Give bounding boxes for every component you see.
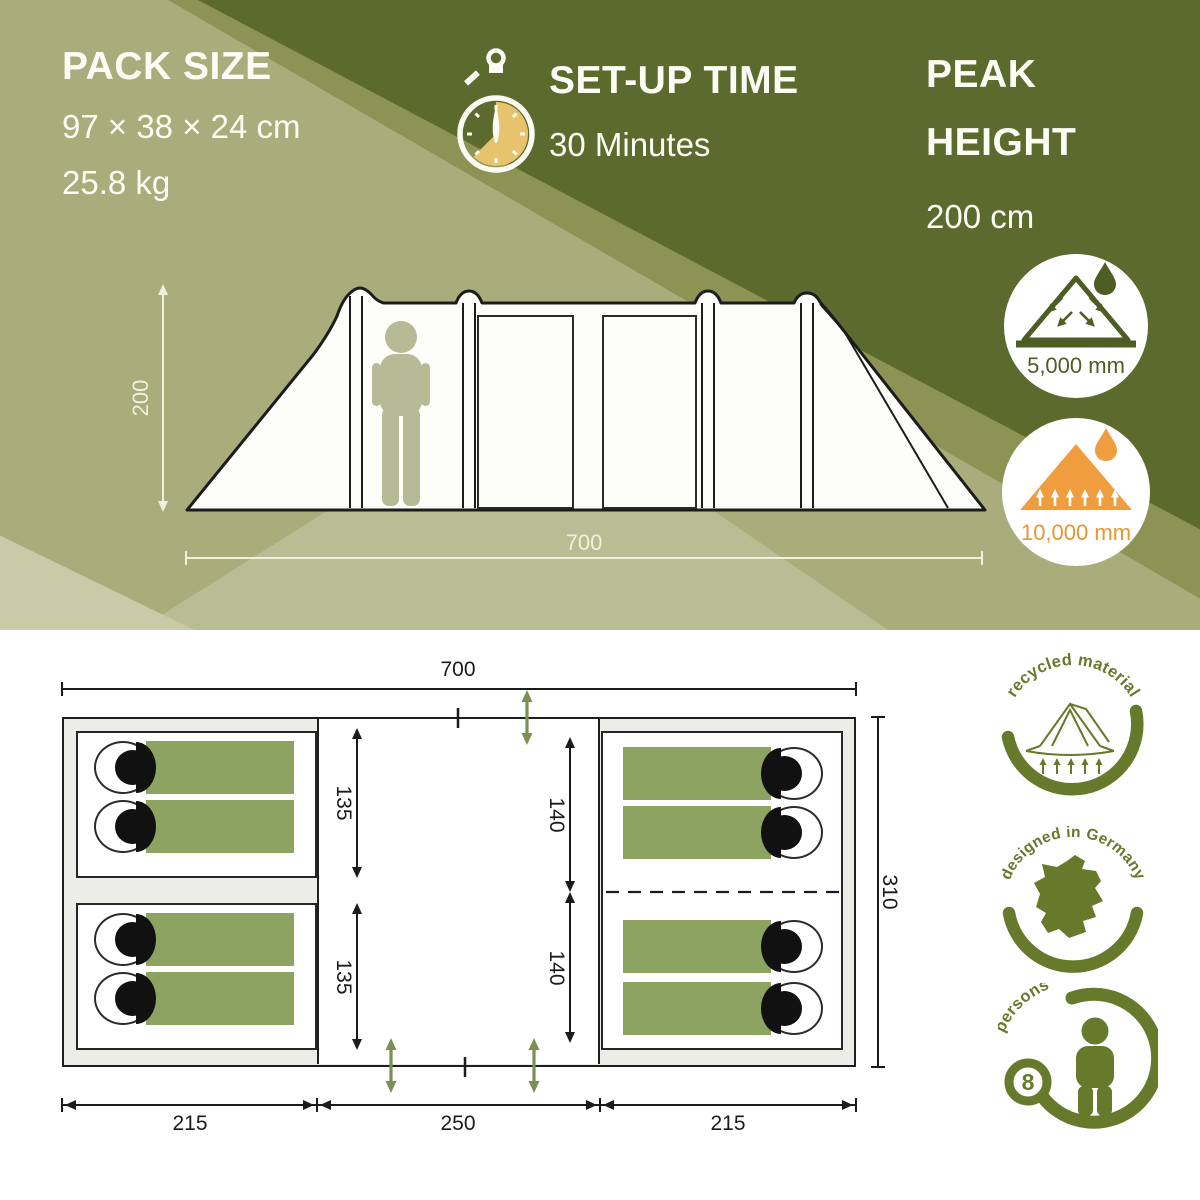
plan-width-label: 700 [428, 658, 488, 682]
pack-size-dims: 97 × 38 × 24 cm [62, 108, 301, 146]
sleeping-bag [623, 920, 823, 973]
rain-rating-value: 5,000 mm [1027, 353, 1125, 378]
sleeping-bag [623, 747, 823, 800]
left-cabin-bottom [76, 903, 317, 1050]
svg-text:recycled material: recycled material [1003, 651, 1143, 700]
bottom-dim-left: 215 [160, 1112, 220, 1136]
left-cabin-depth-label-2: 135 [331, 952, 355, 1002]
floorplan [62, 717, 856, 1067]
setup-time-value: 30 Minutes [549, 126, 710, 164]
left-cabin-depth-label-1: 135 [331, 778, 355, 828]
peak-height-title-1: PEAK [926, 54, 1036, 97]
persons-label: persons [998, 983, 1052, 1035]
recycled-material-label: recycled material [1003, 651, 1143, 700]
rain-rating-badge: 5,000 mm [1004, 254, 1148, 398]
svg-text:persons: persons [998, 983, 1052, 1035]
recycled-material-badge: recycled material [993, 647, 1153, 807]
sleeping-bag [94, 913, 294, 966]
mid-segment-label-1: 140 [544, 790, 568, 840]
ground-rating-badge: 10,000 mm [1002, 418, 1150, 566]
middle-living-area [317, 719, 600, 1064]
width-dimension-label: 700 [554, 530, 614, 556]
bottom-dim-right: 215 [698, 1112, 758, 1136]
plan-depth-label: 310 [877, 867, 901, 917]
germany-map-icon [1034, 855, 1103, 938]
tent-outline [187, 288, 985, 510]
sleeping-bag [623, 982, 823, 1035]
pack-size-weight: 25.8 kg [62, 164, 170, 202]
ground-rating-value: 10,000 mm [1021, 520, 1131, 545]
persons-badge: persons 8 [998, 983, 1158, 1143]
tent-door-left [478, 316, 573, 508]
pack-size-title: PACK SIZE [62, 46, 272, 89]
tent-pegs-icon [1040, 758, 1103, 774]
tent-icon [1026, 704, 1114, 755]
peak-height-title-2: HEIGHT [926, 122, 1076, 165]
sleeping-bag [94, 741, 294, 794]
bottom-dim-mid: 250 [428, 1112, 488, 1136]
person-icon [1076, 1018, 1114, 1117]
height-dimension-label: 200 [128, 368, 152, 428]
designed-in-germany-badge: designed in Germany [993, 817, 1153, 977]
persons-count: 8 [1022, 1069, 1035, 1095]
stopwatch-icon [452, 44, 540, 200]
right-cabin [601, 731, 843, 1050]
peak-height-value: 200 cm [926, 198, 1034, 236]
sleeping-bag [94, 972, 294, 1025]
rain-column-icon: 5,000 mm [1004, 254, 1148, 398]
tent-infographic: 200 700 PACK SIZE 97 × 38 × 24 cm 25.8 k… [0, 0, 1200, 1200]
tent-door-right [603, 316, 696, 508]
sleeping-bag [623, 806, 823, 859]
groundsheet-column-icon: 10,000 mm [1002, 418, 1150, 566]
left-cabin-top [76, 731, 317, 878]
top-banner: 200 700 PACK SIZE 97 × 38 × 24 cm 25.8 k… [0, 0, 1200, 630]
sleeping-bag [94, 800, 294, 853]
mid-segment-label-2: 140 [544, 943, 568, 993]
setup-time-title: SET-UP TIME [549, 60, 799, 103]
